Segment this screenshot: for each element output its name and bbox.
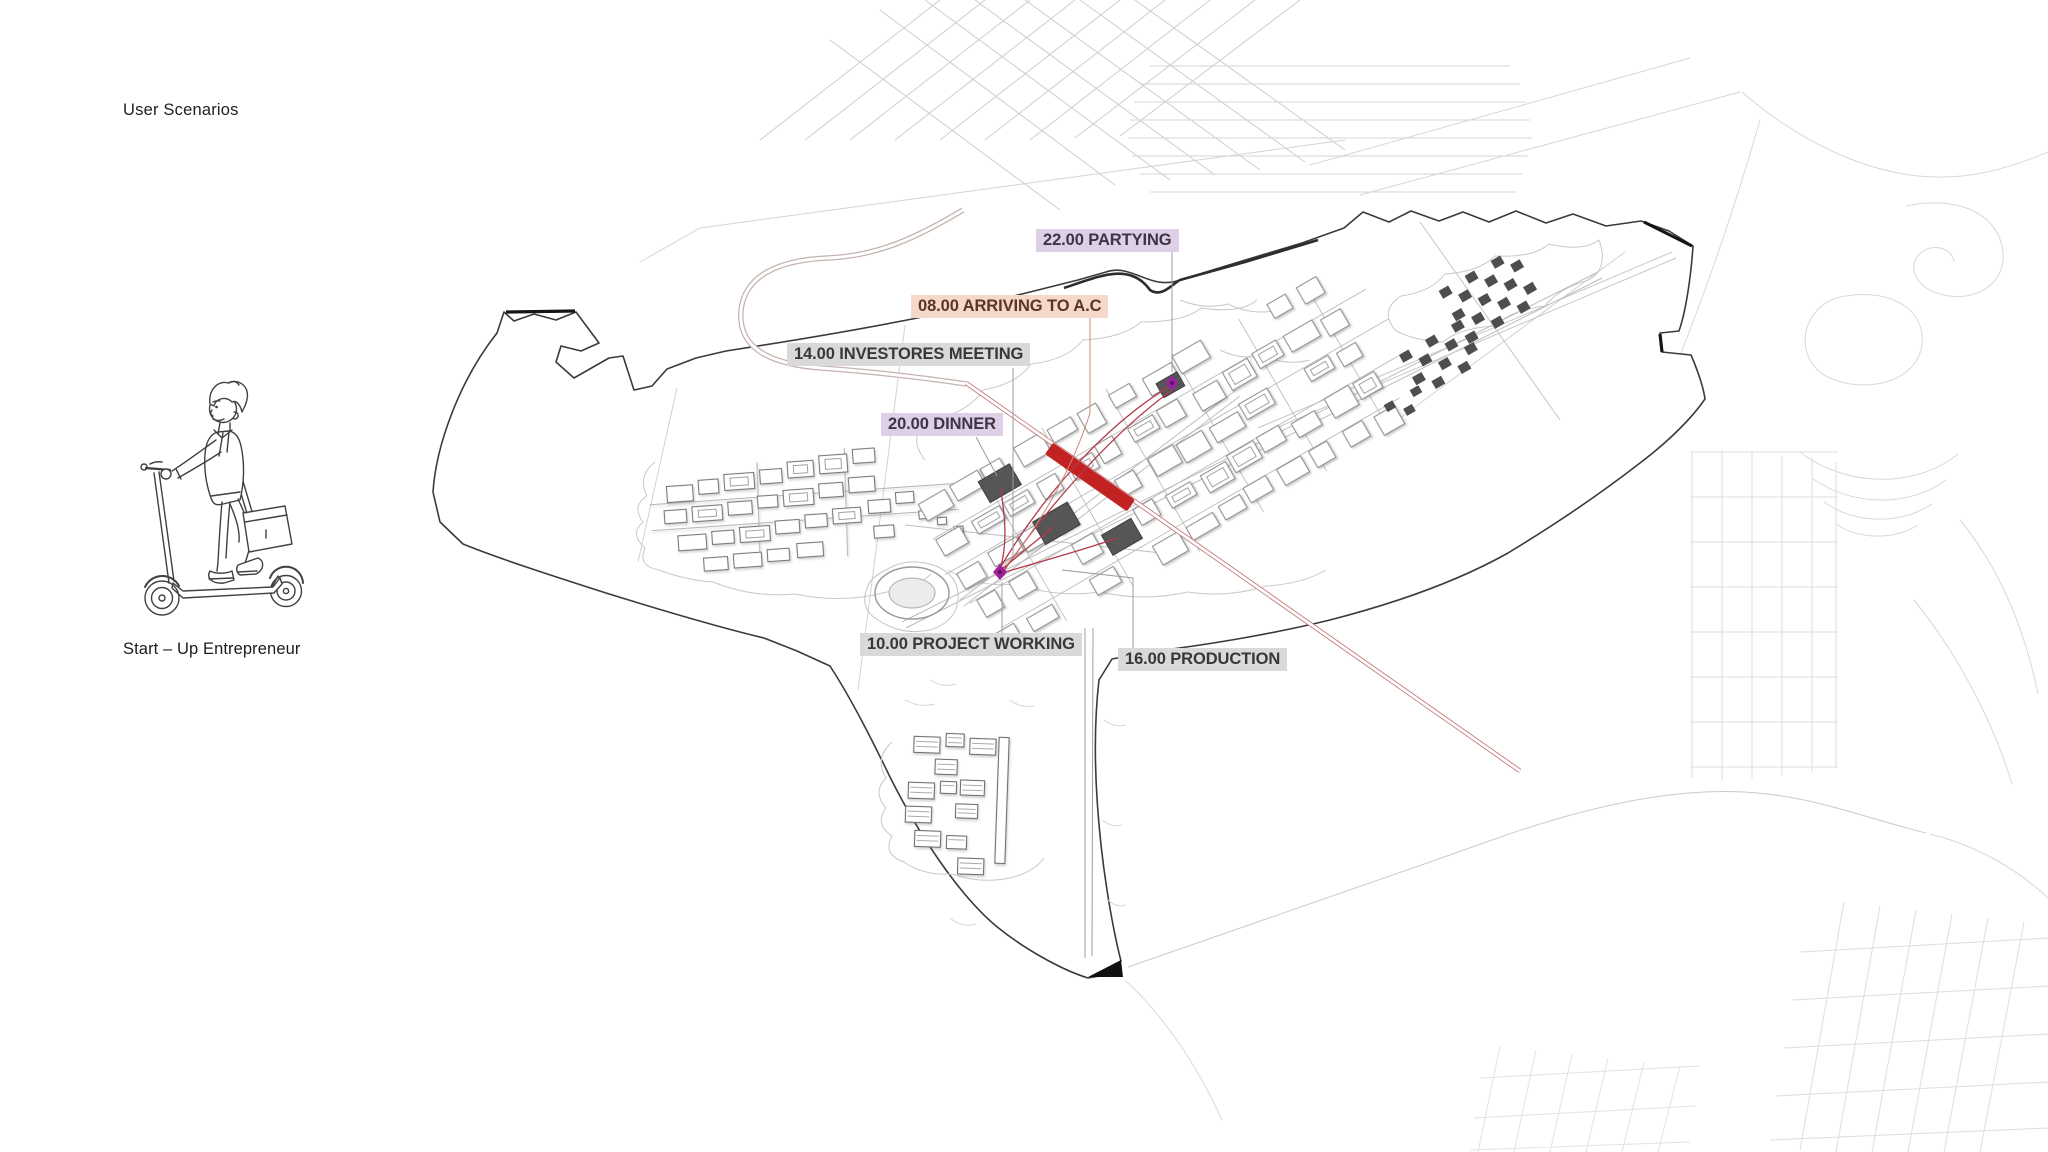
entrepreneur-figure (161, 381, 292, 583)
scenario-label-partying: 22.00 PARTYING (1036, 229, 1179, 252)
scenario-label-project-working: 10.00 PROJECT WORKING (860, 633, 1082, 656)
entrepreneur-scooter-illustration (126, 372, 322, 632)
scenario-label-arriving: 08.00 ARRIVING TO A.C (911, 295, 1108, 318)
page-title: User Scenarios (123, 101, 239, 120)
scenario-label-investors-meeting: 14.00 INVESTORES MEETING (787, 343, 1030, 366)
scenario-label-dinner: 20.00 DINNER (881, 413, 1003, 436)
site-plan (433, 211, 1705, 978)
site-boundary (433, 211, 1705, 978)
scenario-label-production: 16.00 PRODUCTION (1118, 648, 1287, 671)
user-scenarios-slide: User Scenarios 08.00 ARRIVING TO A.C 10.… (0, 0, 2048, 1152)
persona-caption: Start – Up Entrepreneur (123, 640, 300, 659)
